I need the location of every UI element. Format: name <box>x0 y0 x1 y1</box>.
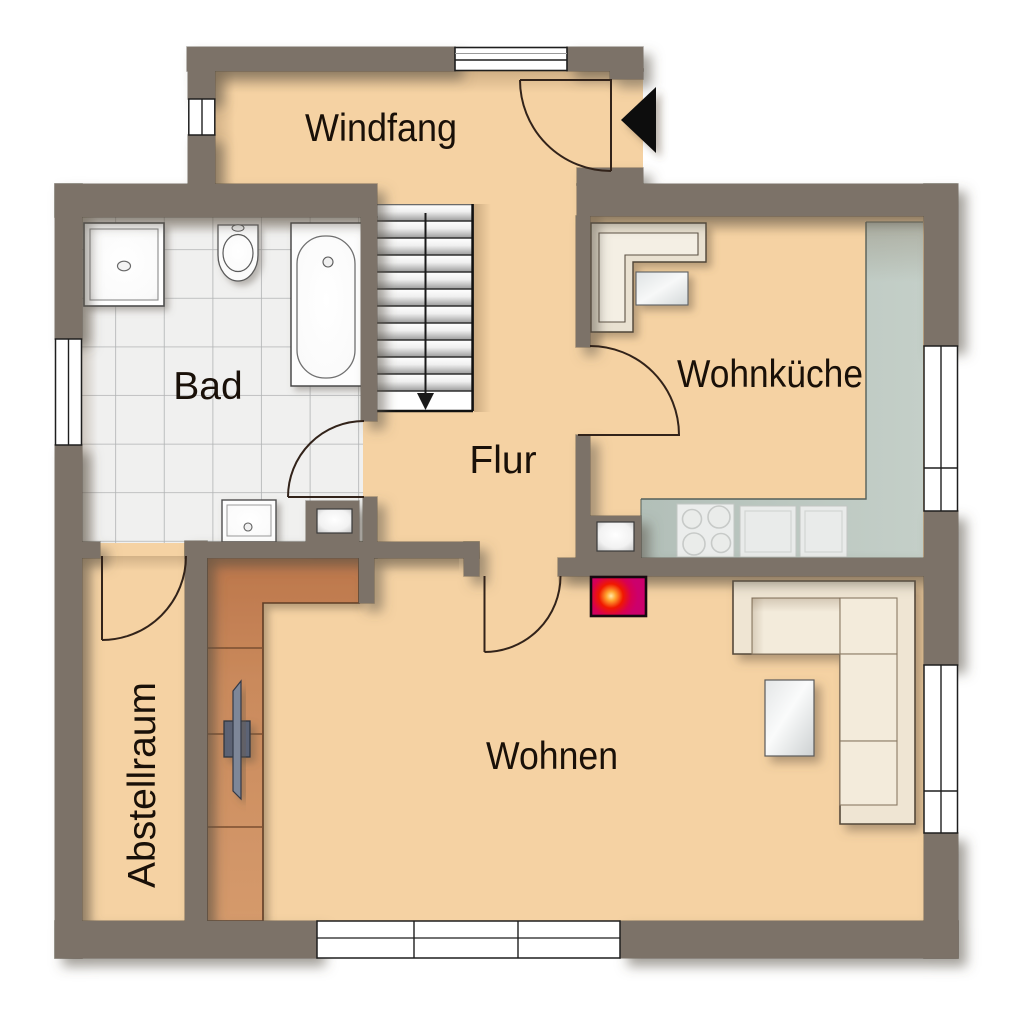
svg-text:Wohnen: Wohnen <box>486 735 618 778</box>
svg-text:Wohnküche: Wohnküche <box>677 353 863 396</box>
svg-text:Flur: Flur <box>469 439 536 482</box>
svg-text:Bad: Bad <box>173 365 242 408</box>
svg-text:Abstellraum: Abstellraum <box>121 682 164 888</box>
svg-text:Windfang: Windfang <box>305 107 457 150</box>
